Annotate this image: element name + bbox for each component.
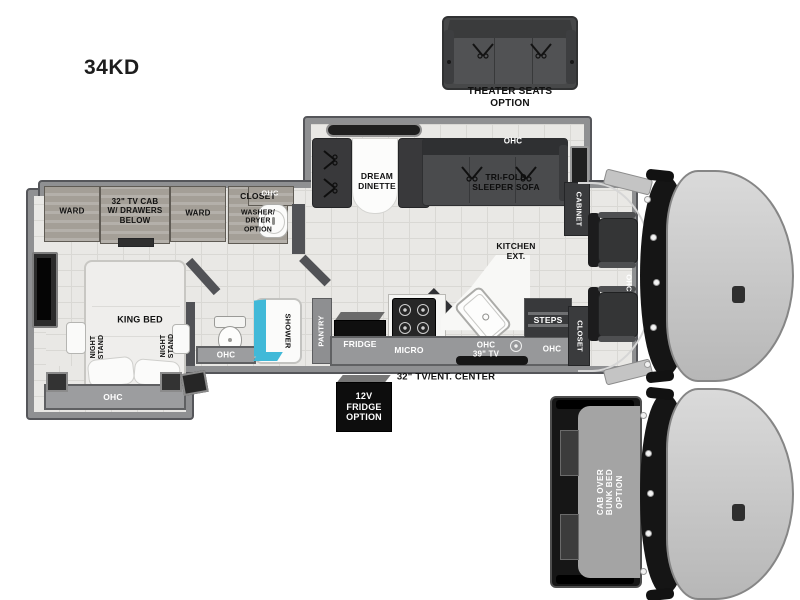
vanity-ohc-label: OHC bbox=[261, 190, 278, 199]
rivet-dot bbox=[650, 324, 657, 331]
entry-ohc-label: OHC bbox=[543, 344, 561, 353]
rivet-dot bbox=[644, 196, 651, 203]
front-wheel bbox=[646, 370, 675, 384]
bedroom-window bbox=[160, 372, 182, 392]
rivet-dot bbox=[640, 568, 647, 575]
cooktop bbox=[392, 298, 436, 340]
bedroom-tv-screen bbox=[37, 258, 51, 320]
rivet-dot bbox=[645, 530, 652, 537]
shower-label: SHOWER bbox=[283, 314, 292, 349]
ward-left-label: WARD bbox=[59, 206, 84, 215]
captain-chair-driver bbox=[588, 212, 636, 268]
cab-ohc-label: OHC bbox=[624, 274, 633, 291]
bunk-window bbox=[560, 430, 579, 476]
ohc-39tv-label: OHC 39" TV bbox=[473, 341, 499, 360]
dinette-window bbox=[326, 123, 422, 137]
sofa-ohc-label: OHC bbox=[504, 136, 522, 145]
theater-back-panel bbox=[446, 20, 574, 38]
burner-icon bbox=[417, 322, 429, 334]
exterior-compartment bbox=[180, 370, 208, 396]
washer-dryer-label: WASHER/ DRYER OPTION bbox=[241, 210, 275, 235]
bath-ohc-label: OHC bbox=[217, 350, 235, 359]
micro-label: MICRO bbox=[394, 345, 423, 355]
shower-glass-panel bbox=[254, 299, 266, 356]
rivet-dot bbox=[447, 60, 451, 64]
night-stand-left-label: NIGHT STAND bbox=[90, 335, 107, 360]
tv-cab-drawer bbox=[118, 238, 154, 247]
cab-over-bunk-label: CAB OVER BUNK BED OPTION bbox=[596, 469, 624, 515]
theater-armrest bbox=[444, 30, 454, 84]
tv-ent-center-label: 32" TV/ENT. CENTER bbox=[397, 371, 495, 382]
ward-right-label: WARD bbox=[185, 208, 210, 217]
sleeper-sofa-label: TRI-FOLD SLEEPER SOFA bbox=[472, 172, 540, 192]
steps-label: STEPS bbox=[534, 315, 563, 325]
hood-latch bbox=[732, 286, 745, 303]
hood bbox=[666, 388, 794, 600]
front-wheel bbox=[646, 588, 675, 600]
rivet-dot bbox=[644, 361, 651, 368]
king-bed-label: KING BED bbox=[117, 315, 163, 326]
bedroom-tv bbox=[32, 252, 58, 328]
cab-front-exterior-bunk bbox=[640, 392, 792, 596]
rivet-dot bbox=[650, 234, 657, 241]
dream-dinette-label: DREAM DINETTE bbox=[358, 171, 396, 191]
fridge-label: FRIDGE bbox=[343, 339, 376, 349]
rivet-dot bbox=[645, 450, 652, 457]
pantry-label: PANTRY bbox=[318, 315, 327, 346]
wall-vanity-right bbox=[292, 204, 305, 254]
captain-chair-passenger bbox=[588, 286, 636, 342]
cab-closet-label: CLOSET bbox=[575, 320, 584, 352]
tv-cab-label: 32" TV CAB W/ DRAWERS BELOW bbox=[108, 197, 163, 225]
model-title: 34KD bbox=[84, 56, 140, 80]
cab-front-exterior bbox=[640, 174, 792, 378]
night-stand-right-label: NIGHT STAND bbox=[160, 334, 177, 359]
theater-armrest bbox=[566, 30, 576, 84]
cab-cabinet-label: CABINET bbox=[574, 192, 583, 227]
seatbelt-icon bbox=[322, 148, 338, 172]
burner-icon bbox=[399, 322, 411, 334]
toilet-drain bbox=[228, 338, 232, 342]
rivet-dot bbox=[640, 412, 647, 419]
fan-light-icon bbox=[510, 340, 522, 352]
seatbelt-icon bbox=[322, 176, 338, 200]
bed-fold-line bbox=[92, 306, 180, 307]
burner-icon bbox=[399, 304, 411, 316]
chair-seat bbox=[598, 218, 638, 264]
theater-seats-label: THEATER SEATS OPTION bbox=[468, 86, 552, 110]
chair-armrest bbox=[598, 336, 636, 342]
night-stand-left bbox=[66, 322, 86, 354]
rivet-dot bbox=[570, 60, 574, 64]
kitchen-ext-label: KITCHEN EXT. bbox=[496, 241, 535, 261]
chair-armrest bbox=[598, 262, 636, 268]
fridge-12v-top-3d bbox=[337, 375, 390, 382]
floorplan-diagram: 34KD bbox=[0, 0, 800, 600]
theater-seats-option bbox=[442, 16, 578, 90]
fridge-12v-label: 12V FRIDGE OPTION bbox=[346, 391, 382, 423]
fridge-top-3d bbox=[335, 312, 385, 320]
rivet-dot bbox=[653, 279, 660, 286]
bedroom-ohc-label: OHC bbox=[103, 392, 123, 402]
bedroom-window bbox=[46, 372, 68, 392]
seatbelt-icon bbox=[528, 42, 554, 60]
chair-seat bbox=[598, 292, 638, 338]
rivet-dot bbox=[647, 490, 654, 497]
hood bbox=[666, 170, 794, 382]
seatbelt-icon bbox=[470, 42, 496, 60]
burner-icon bbox=[417, 304, 429, 316]
chair-armrest bbox=[598, 212, 636, 218]
hood-latch bbox=[732, 504, 745, 521]
sofa-back bbox=[423, 139, 567, 155]
bunk-window bbox=[560, 514, 579, 560]
